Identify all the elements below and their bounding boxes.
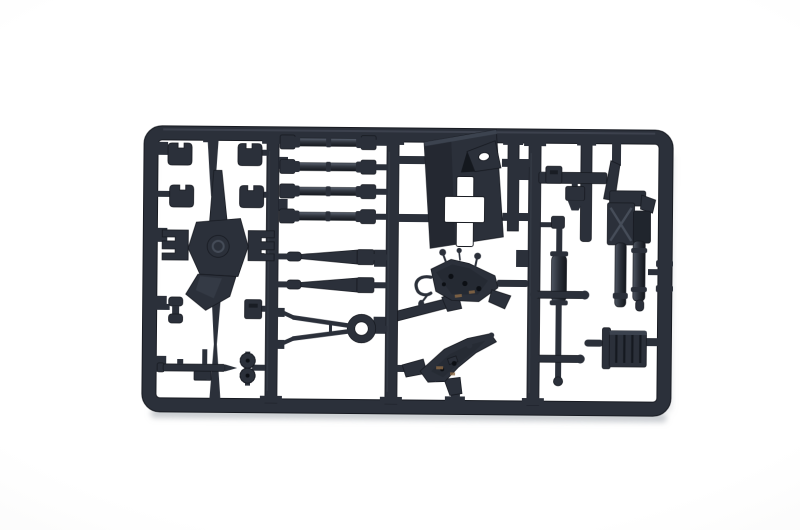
runner-3 bbox=[385, 140, 399, 404]
part-ammo-box bbox=[584, 328, 661, 370]
part-small-bracket bbox=[245, 300, 267, 319]
sprue bbox=[149, 127, 674, 410]
part-towing-bar bbox=[282, 312, 387, 344]
gate-cross-bottom bbox=[209, 298, 221, 399]
part-barrel-rods bbox=[279, 135, 388, 224]
runner-2 bbox=[265, 139, 279, 403]
part-lower-carriage bbox=[394, 332, 497, 404]
sprue-illustration bbox=[0, 0, 800, 530]
part-machine-gun bbox=[152, 349, 237, 381]
part-upper-cradle bbox=[398, 247, 529, 322]
part-knurled-wheels bbox=[240, 352, 265, 386]
part-tapered-rods bbox=[277, 249, 387, 293]
sprue-photo bbox=[0, 0, 800, 530]
